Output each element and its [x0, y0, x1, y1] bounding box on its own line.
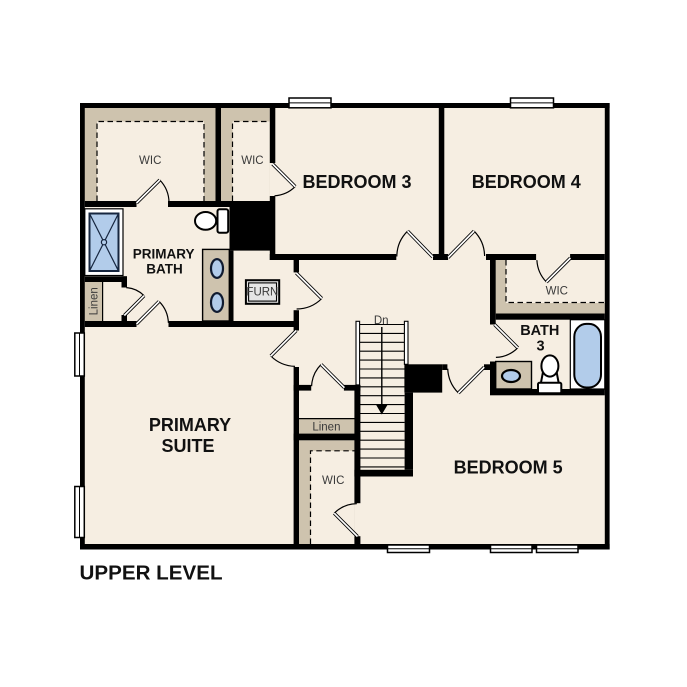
svg-text:BATH: BATH — [520, 323, 559, 339]
svg-text:SUITE: SUITE — [161, 436, 214, 456]
svg-text:PRIMARY: PRIMARY — [133, 247, 195, 262]
svg-text:3: 3 — [537, 339, 545, 355]
svg-text:WIC: WIC — [546, 286, 568, 298]
svg-text:BEDROOM 5: BEDROOM 5 — [454, 458, 563, 478]
svg-text:WIC: WIC — [241, 155, 263, 167]
svg-text:FURN: FURN — [246, 286, 278, 298]
svg-text:Dn: Dn — [374, 315, 389, 327]
svg-text:Linen: Linen — [89, 287, 101, 315]
svg-text:BEDROOM 4: BEDROOM 4 — [472, 172, 581, 192]
svg-text:BEDROOM 3: BEDROOM 3 — [302, 172, 411, 192]
svg-text:UPPER LEVEL: UPPER LEVEL — [80, 562, 223, 585]
svg-text:WIC: WIC — [139, 155, 161, 167]
svg-text:PRIMARY: PRIMARY — [149, 415, 231, 435]
svg-text:Linen: Linen — [312, 422, 340, 434]
svg-text:WIC: WIC — [322, 475, 344, 487]
svg-text:BATH: BATH — [146, 262, 183, 277]
